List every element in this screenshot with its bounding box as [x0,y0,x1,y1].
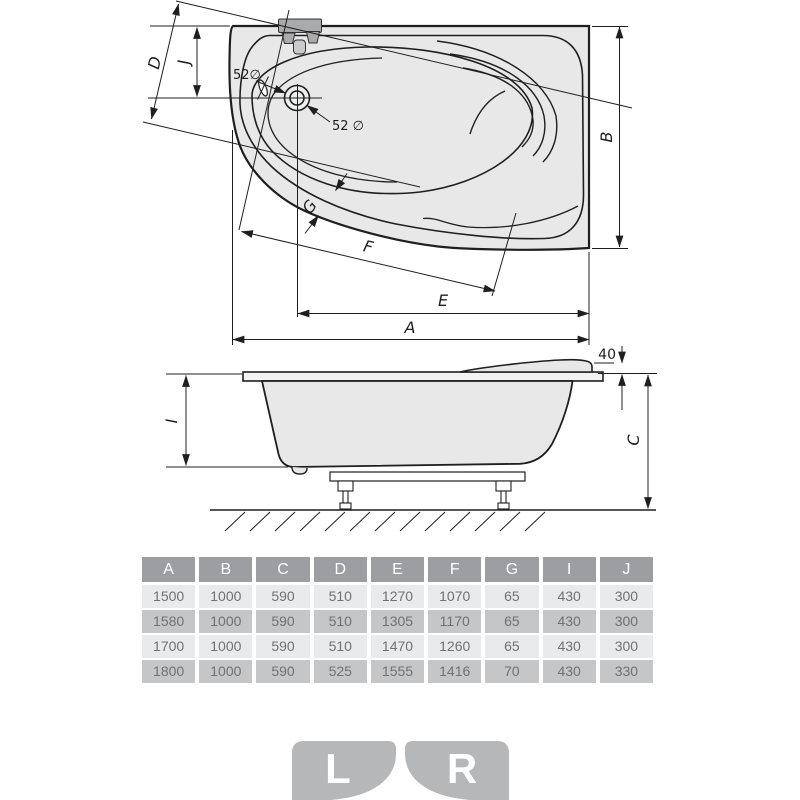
dimensions-table: A B C D E F G I J 1500 1000 590 510 1270… [142,557,653,685]
table-cell: 1070 [428,585,481,608]
col-header: J [600,557,653,582]
headrest-profile [460,360,592,372]
orientation-right-icon[interactable]: R [405,741,509,800]
table-header-row: A B C D E F G I J [142,557,653,582]
table-cell: 1416 [428,660,481,683]
table-cell: 1000 [199,635,252,658]
col-header: F [428,557,481,582]
table-cell: 1305 [371,610,424,633]
table-cell: 590 [256,585,309,608]
table-row: 1700 1000 590 510 1470 1260 65 430 300 [142,635,653,658]
table-row: 1500 1000 590 510 1270 1070 65 430 300 [142,585,653,608]
col-header: C [256,557,309,582]
table-cell: 330 [600,660,653,683]
dim-line-G1 [305,216,319,234]
right-icon-letter: R [447,745,477,792]
table-cell: 1800 [142,660,195,683]
table-cell: 65 [485,585,538,608]
label-drain-diameter: 52 ∅ [332,119,364,134]
table-cell: 510 [314,635,367,658]
col-header: E [371,557,424,582]
side-view: I C 40 [162,346,657,531]
plan-view: D J G F E A B 52∅ 52 ∅ [143,1,632,345]
label-E: E [438,291,449,310]
label-overflow-diameter: 52∅ [233,68,261,83]
label-J: J [174,59,193,67]
faucet-handle-left [282,33,295,44]
table-cell: 1500 [142,585,195,608]
col-header: I [543,557,596,582]
col-header: G [485,557,538,582]
drain-bump [292,467,307,474]
table-row: 1580 1000 590 510 1305 1170 65 430 300 [142,610,653,633]
faucet-spout [294,40,306,54]
col-header: D [314,557,367,582]
table-cell: 430 [543,635,596,658]
table-cell: 1270 [371,585,424,608]
drawing-canvas: D J G F E A B 52∅ 52 ∅ [0,0,800,556]
table-cell: 300 [600,585,653,608]
table-cell: 510 [314,585,367,608]
tub-body-profile [262,381,573,467]
table-cell: 590 [256,635,309,658]
table-cell: 430 [543,660,596,683]
table-cell: 1470 [371,635,424,658]
table-cell: 1555 [371,660,424,683]
label-I: I [162,418,181,423]
table-cell: 590 [256,660,309,683]
col-header: A [142,557,195,582]
orientation-left-icon[interactable]: L [292,741,396,800]
label-40: 40 [598,347,616,363]
table-cell: 300 [600,635,653,658]
table-row: 1800 1000 590 525 1555 1416 70 430 330 [142,660,653,683]
rim-profile [243,372,603,381]
ground-hatching [225,512,545,531]
table-cell: 1000 [199,610,252,633]
label-A: A [404,318,416,337]
table-cell: 1000 [199,660,252,683]
table-cell: 300 [600,610,653,633]
table-cell: 65 [485,635,538,658]
table-cell: 1260 [428,635,481,658]
table-cell: 590 [256,610,309,633]
orientation-icons: L R [0,720,800,800]
col-header: B [199,557,252,582]
table-cell: 70 [485,660,538,683]
label-F: F [362,236,376,257]
tub-outline [229,26,589,250]
leg-right [496,481,511,509]
left-icon-letter: L [325,745,351,792]
label-C: C [624,434,643,446]
table-cell: 430 [543,610,596,633]
bathtub-technical-drawing: D J G F E A B 52∅ 52 ∅ [0,0,800,800]
table-cell: 65 [485,610,538,633]
support-frame [330,472,525,481]
label-D: D [144,55,165,71]
table-cell: 430 [543,585,596,608]
table-cell: 1170 [428,610,481,633]
label-B: B [597,132,616,143]
leg-left [338,481,353,509]
table-cell: 1580 [142,610,195,633]
table-cell: 1000 [199,585,252,608]
table-cell: 510 [314,610,367,633]
table-cell: 525 [314,660,367,683]
table-cell: 1700 [142,635,195,658]
